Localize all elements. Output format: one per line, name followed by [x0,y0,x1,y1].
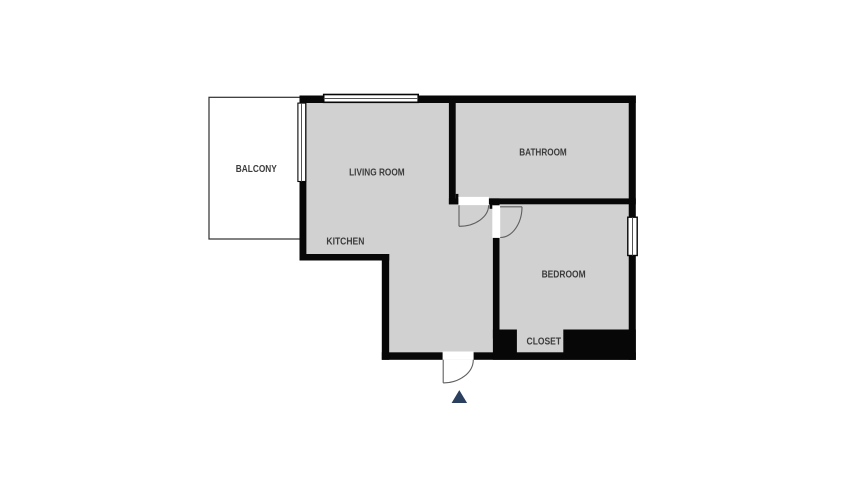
svg-text:BEDROOM: BEDROOM [542,269,586,280]
svg-text:LIVING ROOM: LIVING ROOM [349,168,405,179]
svg-text:CLOSET: CLOSET [527,337,562,348]
svg-text:KITCHEN: KITCHEN [326,236,364,247]
svg-text:BATHROOM: BATHROOM [519,148,567,159]
svg-text:BALCONY: BALCONY [236,164,277,175]
